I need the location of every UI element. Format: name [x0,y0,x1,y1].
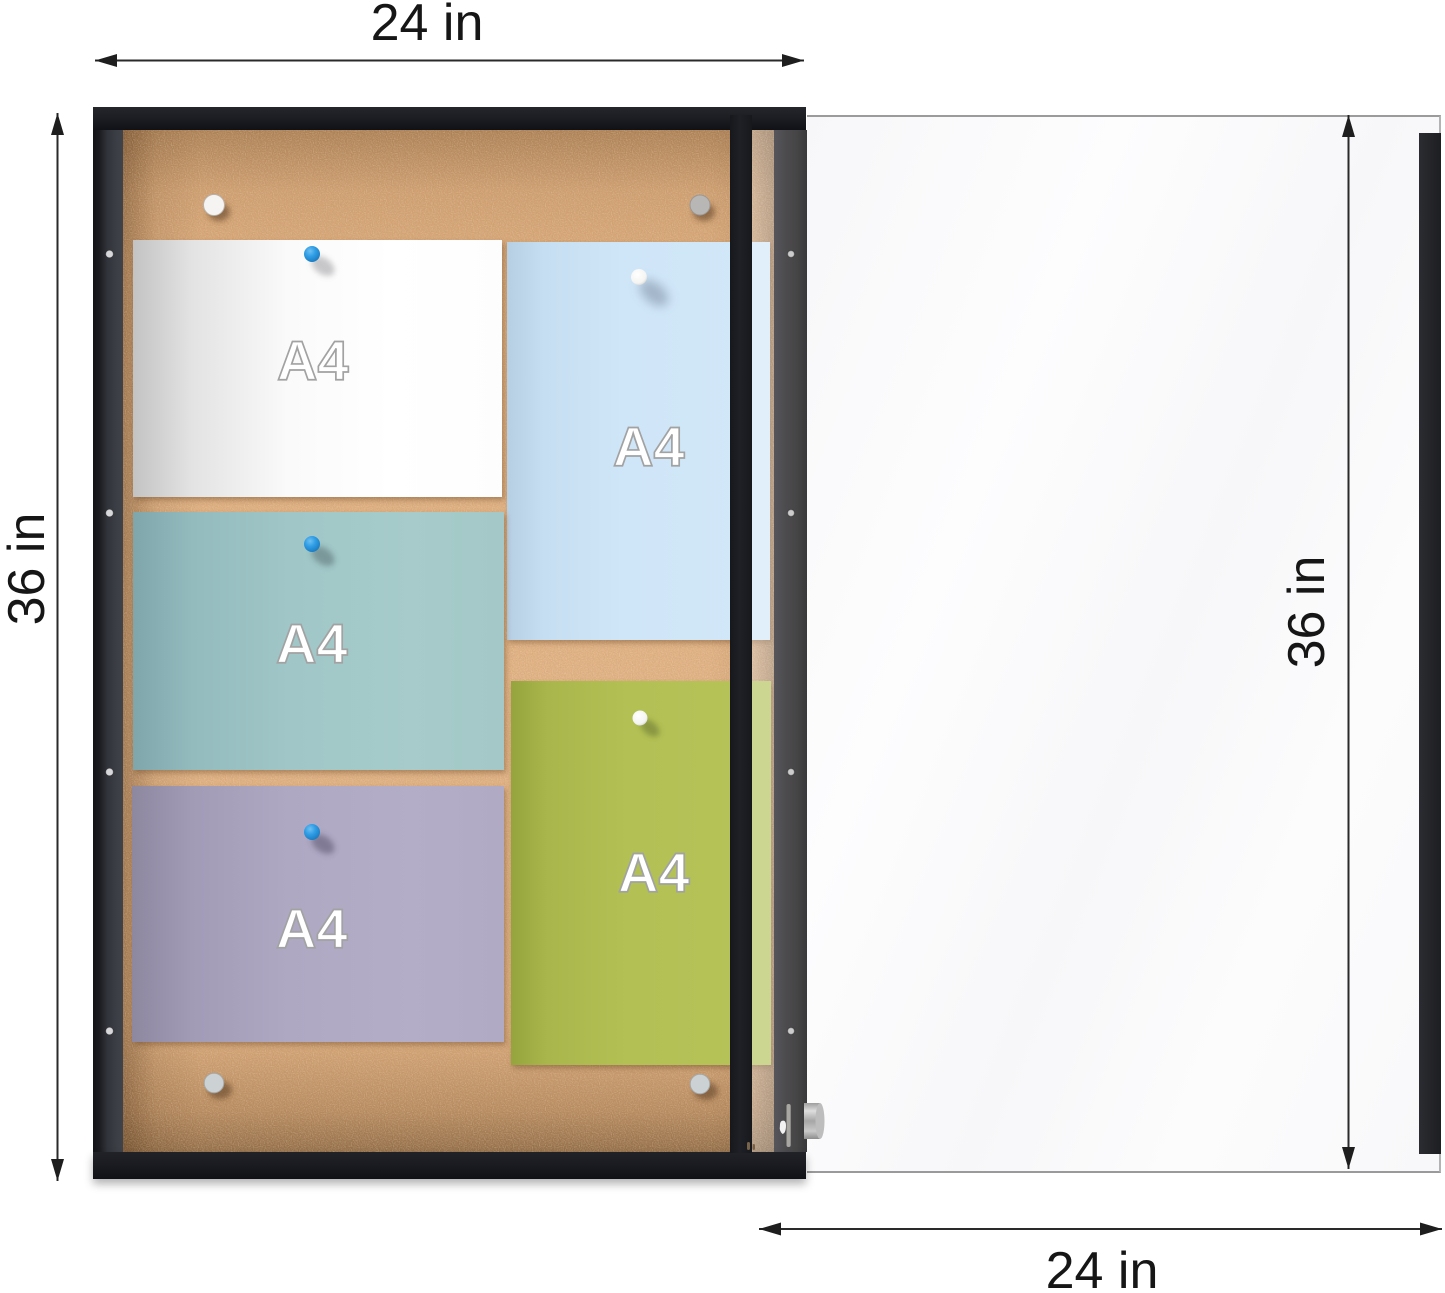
svg-text:36 in: 36 in [1278,556,1336,669]
svg-text:24 in: 24 in [1046,1242,1159,1293]
svg-text:24 in: 24 in [371,0,484,52]
svg-text:36 in: 36 in [0,513,56,626]
